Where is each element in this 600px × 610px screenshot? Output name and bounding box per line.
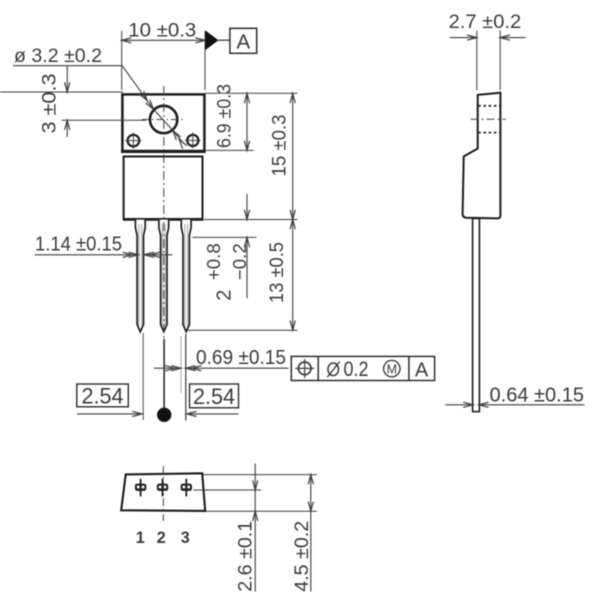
svg-text:15 ±0.3: 15 ±0.3: [269, 115, 291, 177]
svg-text:0.2: 0.2: [344, 358, 369, 381]
svg-text:0.69 ±0.15: 0.69 ±0.15: [196, 347, 286, 369]
svg-text:1: 1: [136, 529, 145, 547]
svg-text:M: M: [387, 362, 397, 376]
svg-text:ø 3.2 ±0.2: ø 3.2 ±0.2: [14, 45, 102, 67]
svg-text:A: A: [236, 31, 250, 54]
svg-text:2: 2: [157, 529, 166, 547]
svg-text:2.6 ±0.1: 2.6 ±0.1: [235, 521, 257, 592]
svg-text:0.64 ±0.15: 0.64 ±0.15: [490, 384, 585, 406]
svg-text:2.7 ±0.2: 2.7 ±0.2: [449, 12, 522, 33]
svg-text:1.14 ±0.15: 1.14 ±0.15: [35, 233, 122, 255]
svg-text:10 ±0.3: 10 ±0.3: [128, 20, 196, 42]
svg-text:3 ±0.3: 3 ±0.3: [39, 74, 61, 134]
svg-text:+0.8: +0.8: [203, 243, 224, 280]
svg-text:2: 2: [214, 290, 236, 301]
svg-text:2.54: 2.54: [193, 384, 235, 409]
svg-text:3: 3: [181, 529, 190, 547]
svg-text:A: A: [415, 360, 429, 382]
svg-text:13 ±0.5: 13 ±0.5: [266, 242, 288, 303]
svg-text:−0.2: −0.2: [229, 243, 250, 280]
svg-text:2.54: 2.54: [82, 384, 124, 409]
svg-text:4.5 ±0.2: 4.5 ±0.2: [291, 521, 313, 592]
